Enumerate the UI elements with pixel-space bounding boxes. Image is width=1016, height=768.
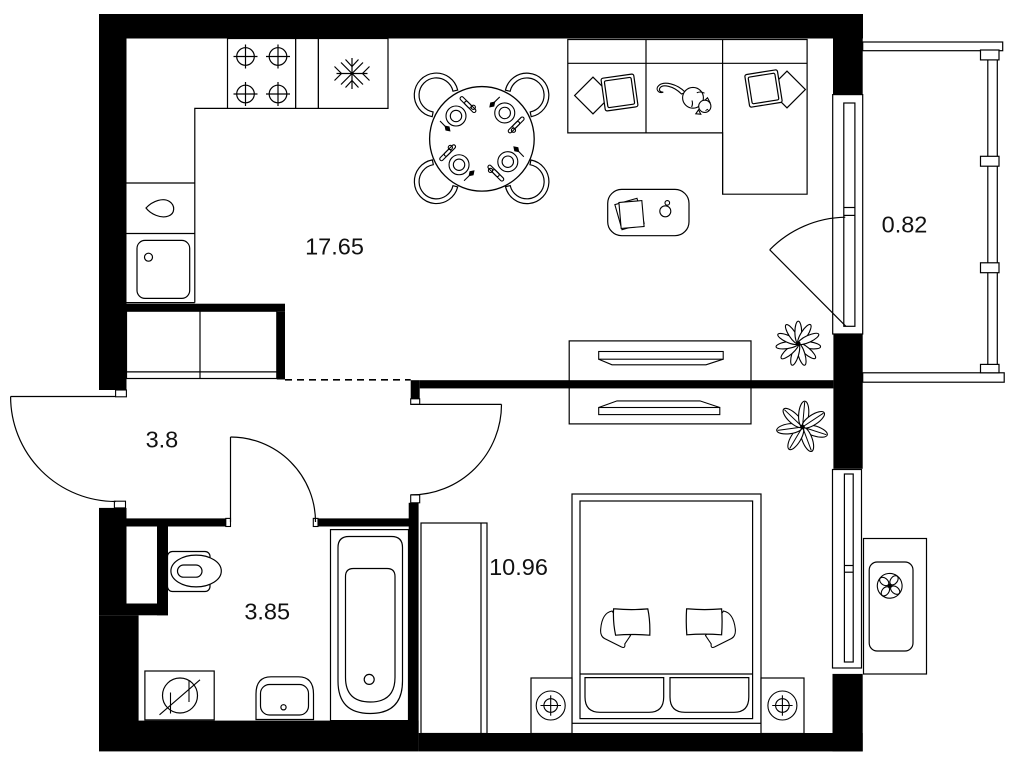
svg-text:17.65: 17.65 <box>305 234 364 260</box>
svg-text:10.96: 10.96 <box>489 554 548 580</box>
svg-text:3.8: 3.8 <box>146 427 179 453</box>
svg-text:0.82: 0.82 <box>882 212 928 238</box>
svg-text:3.85: 3.85 <box>244 598 290 624</box>
